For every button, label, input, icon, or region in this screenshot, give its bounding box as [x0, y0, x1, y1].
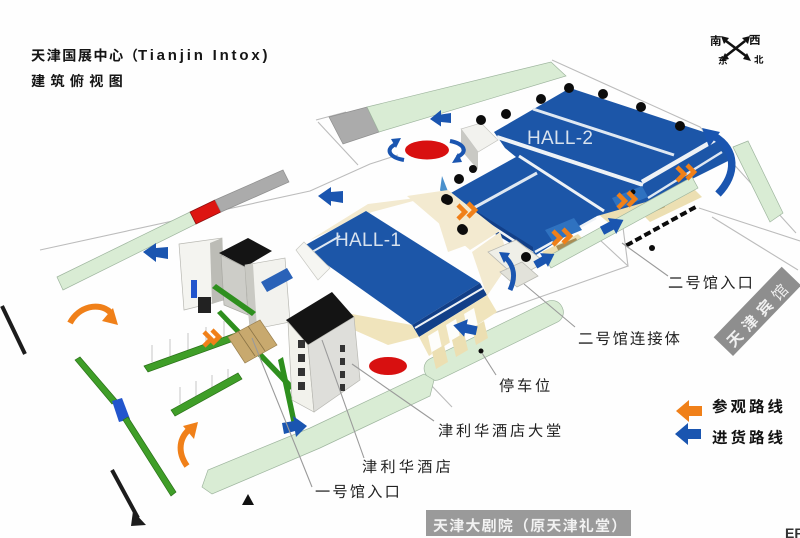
svg-text:HALL-2: HALL-2: [527, 128, 593, 149]
svg-text:HALL-1: HALL-1: [335, 230, 401, 251]
svg-text:Tianjin Intox): Tianjin Intox): [138, 47, 270, 64]
svg-text:EF: EF: [785, 525, 800, 538]
